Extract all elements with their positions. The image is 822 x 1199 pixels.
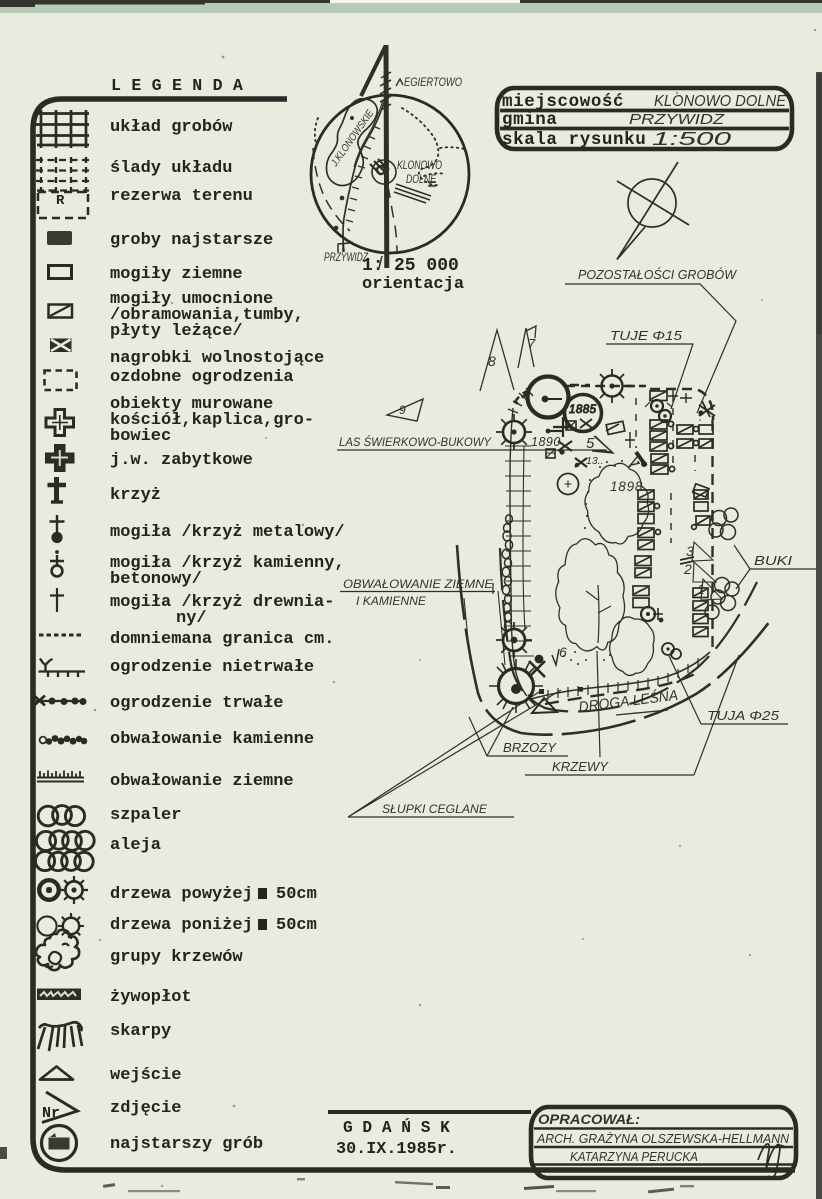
svg-text:6: 6 <box>559 644 567 660</box>
svg-text:rezerwa terenu: rezerwa terenu <box>110 187 253 206</box>
svg-text:mogiły ziemne: mogiły ziemne <box>110 265 243 284</box>
svg-text:miejscowość: miejscowość <box>502 92 624 112</box>
svg-text:SŁUPKI CEGLANE: SŁUPKI CEGLANE <box>382 804 487 816</box>
svg-text:POZOSTAŁOŚCI GROBÓW: POZOSTAŁOŚCI GROBÓW <box>578 267 737 282</box>
svg-text:7: 7 <box>528 336 536 351</box>
svg-text:1:: 1: <box>362 256 384 276</box>
svg-text:8: 8 <box>488 353 496 369</box>
svg-text:OBWAŁOWANIE ZIEMNE: OBWAŁOWANIE ZIEMNE <box>343 577 494 591</box>
svg-text:ny/: ny/ <box>176 609 207 628</box>
svg-text:1: 1 <box>697 581 705 597</box>
svg-text:1890: 1890 <box>531 435 561 449</box>
svg-text:ARCH. GRAŻYNA OLSZEWSKA-HELLMA: ARCH. GRAŻYNA OLSZEWSKA-HELLMANN <box>536 1132 790 1146</box>
svg-text:płyty leżące/: płyty leżące/ <box>110 322 243 341</box>
svg-text:układ grobów: układ grobów <box>110 118 233 137</box>
svg-text:mogiła /krzyż metalowy/: mogiła /krzyż metalowy/ <box>110 523 345 542</box>
svg-text:orientacja: orientacja <box>362 275 464 294</box>
svg-text:BRZOZY: BRZOZY <box>503 741 558 755</box>
svg-text:PRZYWIDZ: PRZYWIDZ <box>629 111 725 128</box>
svg-text:nagrobki wolnostojące: nagrobki wolnostojące <box>110 349 324 368</box>
svg-text:ozdobne ogrodzenia: ozdobne ogrodzenia <box>110 368 294 387</box>
svg-text:skala rysunku: skala rysunku <box>502 130 646 150</box>
svg-text:aleja: aleja <box>110 836 161 855</box>
svg-text:13..: 13.. <box>586 455 604 467</box>
svg-text:25 000: 25 000 <box>394 256 459 276</box>
svg-text:G D A Ń S K: G D A Ń S K <box>343 1118 450 1137</box>
svg-text:zdjęcie: zdjęcie <box>110 1099 181 1118</box>
svg-text:OPRACOWAŁ:: OPRACOWAŁ: <box>538 1111 640 1127</box>
svg-text:2: 2 <box>683 561 692 577</box>
svg-text:LAS ŚWIERKOWO-BUKOWY: LAS ŚWIERKOWO-BUKOWY <box>339 436 492 449</box>
svg-text:najstarszy grób: najstarszy grób <box>110 1135 263 1154</box>
svg-text:KRZEWY: KRZEWY <box>552 760 610 774</box>
svg-text:betonowy/: betonowy/ <box>110 570 202 589</box>
svg-text:drzewa poniżej: drzewa poniżej <box>110 916 253 935</box>
svg-text:szpaler: szpaler <box>110 806 181 825</box>
svg-text:domniemana granica cm.: domniemana granica cm. <box>110 630 334 649</box>
svg-text:1885: 1885 <box>569 404 597 416</box>
svg-text:KATARZYNA PERUCKA: KATARZYNA PERUCKA <box>570 1150 698 1164</box>
svg-text:9: 9 <box>399 403 406 417</box>
svg-text:I KAMIENNE: I KAMIENNE <box>356 594 427 608</box>
svg-text:50cm: 50cm <box>276 885 317 904</box>
svg-text:ogrodzenie trwałe: ogrodzenie trwałe <box>110 694 283 713</box>
svg-text:obwałowanie ziemne: obwałowanie ziemne <box>110 772 294 791</box>
svg-text:5: 5 <box>586 435 595 452</box>
svg-text:żywopłot: żywopłot <box>110 988 192 1007</box>
svg-text:TUJE Φ15: TUJE Φ15 <box>610 329 682 343</box>
svg-text:1:500: 1:500 <box>652 129 731 149</box>
svg-text:j.w. zabytkowe: j.w. zabytkowe <box>110 451 253 470</box>
svg-text:ślady układu: ślady układu <box>110 159 232 178</box>
svg-text:gmina: gmina <box>502 110 558 130</box>
svg-text:BUKI: BUKI <box>754 554 793 568</box>
svg-text:groby najstarsze: groby najstarsze <box>110 231 273 250</box>
svg-text:EGIERTOWO: EGIERTOWO <box>404 77 462 89</box>
svg-text:drzewa powyżej: drzewa powyżej <box>110 885 253 904</box>
svg-text:skarpy: skarpy <box>110 1022 171 1041</box>
svg-text:L E G E N D A: L E G E N D A <box>111 76 243 95</box>
svg-text:mogiła /krzyż drewnia-: mogiła /krzyż drewnia- <box>110 593 334 612</box>
svg-text:obwałowanie kamienne: obwałowanie kamienne <box>110 730 314 749</box>
svg-text:grupy krzewów: grupy krzewów <box>110 948 243 967</box>
svg-text:ogrodzenie nietrwałe: ogrodzenie nietrwałe <box>110 658 314 677</box>
svg-text:krzyż: krzyż <box>110 486 161 505</box>
svg-text:wejście: wejście <box>110 1066 181 1085</box>
svg-text:R: R <box>56 193 65 209</box>
svg-text:30.IX.1985r.: 30.IX.1985r. <box>336 1140 457 1159</box>
svg-text:bowiec: bowiec <box>110 427 171 446</box>
svg-text:KLONOWO DOLNE: KLONOWO DOLNE <box>654 93 786 110</box>
svg-text:50cm: 50cm <box>276 916 317 935</box>
